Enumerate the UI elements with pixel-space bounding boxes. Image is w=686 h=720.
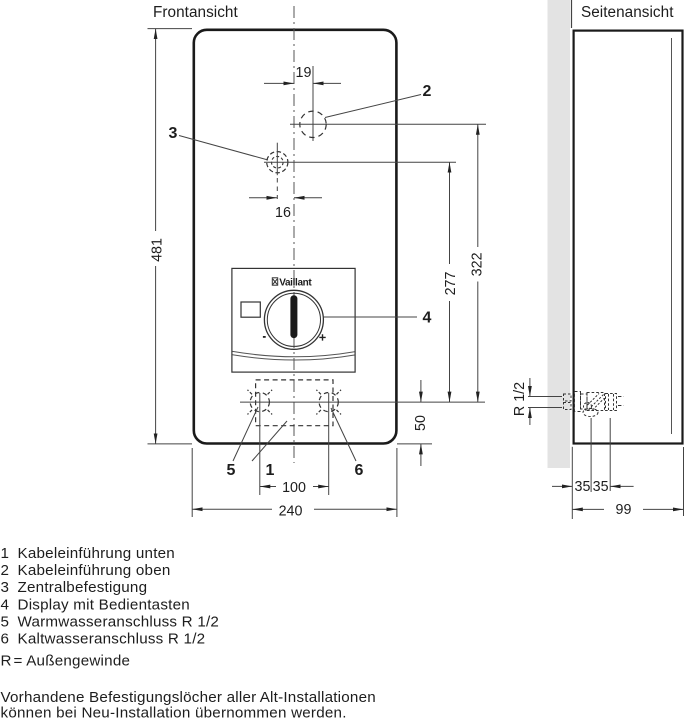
svg-text:277: 277: [443, 272, 459, 296]
svg-text:19: 19: [296, 65, 312, 81]
svg-text:100: 100: [282, 480, 306, 496]
svg-text:1: 1: [266, 462, 275, 479]
svg-text:35: 35: [575, 479, 591, 495]
svg-text:50: 50: [413, 415, 429, 431]
svg-text:481: 481: [150, 238, 166, 262]
svg-text:Kaltwasseranschluss R 1/2: Kaltwasseranschluss R 1/2: [18, 631, 206, 648]
svg-text:= Außengewinde: = Außengewinde: [14, 653, 131, 670]
svg-text:Warmwasseranschluss R 1/2: Warmwasseranschluss R 1/2: [18, 613, 220, 630]
svg-text:240: 240: [279, 504, 303, 520]
svg-text:99: 99: [616, 502, 632, 518]
svg-text:R: R: [1, 653, 12, 670]
svg-text:Kabeleinführung oben: Kabeleinführung oben: [18, 562, 171, 579]
svg-text:Seitenansicht: Seitenansicht: [581, 4, 674, 21]
svg-text:Zentralbefestigung: Zentralbefestigung: [18, 579, 148, 596]
svg-text:Vaillant: Vaillant: [279, 278, 312, 289]
svg-text:Kabeleinführung unten: Kabeleinführung unten: [18, 545, 175, 562]
svg-text:4: 4: [1, 596, 10, 613]
svg-text:5: 5: [227, 462, 236, 479]
svg-text:2: 2: [423, 83, 432, 100]
svg-text:16: 16: [275, 205, 291, 221]
svg-text:6: 6: [355, 462, 364, 479]
svg-text:5: 5: [1, 613, 10, 630]
svg-text:1: 1: [1, 545, 10, 562]
svg-text:können bei Neu-Installation üb: können bei Neu-Installation übernommen w…: [1, 704, 347, 720]
svg-text:R 1/2: R 1/2: [512, 382, 528, 416]
svg-text:322: 322: [470, 252, 486, 276]
svg-text:35: 35: [593, 479, 609, 495]
svg-text:4: 4: [423, 310, 432, 327]
svg-text:3: 3: [169, 125, 178, 142]
svg-text:2: 2: [1, 562, 10, 579]
svg-text:Display mit Bedientasten: Display mit Bedientasten: [18, 596, 190, 613]
svg-text:Frontansicht: Frontansicht: [153, 4, 238, 21]
svg-text:6: 6: [1, 631, 10, 648]
svg-text:3: 3: [1, 579, 10, 596]
svg-text:Vorhandene Befestigungslöcher: Vorhandene Befestigungslöcher aller Alt-…: [1, 689, 376, 706]
